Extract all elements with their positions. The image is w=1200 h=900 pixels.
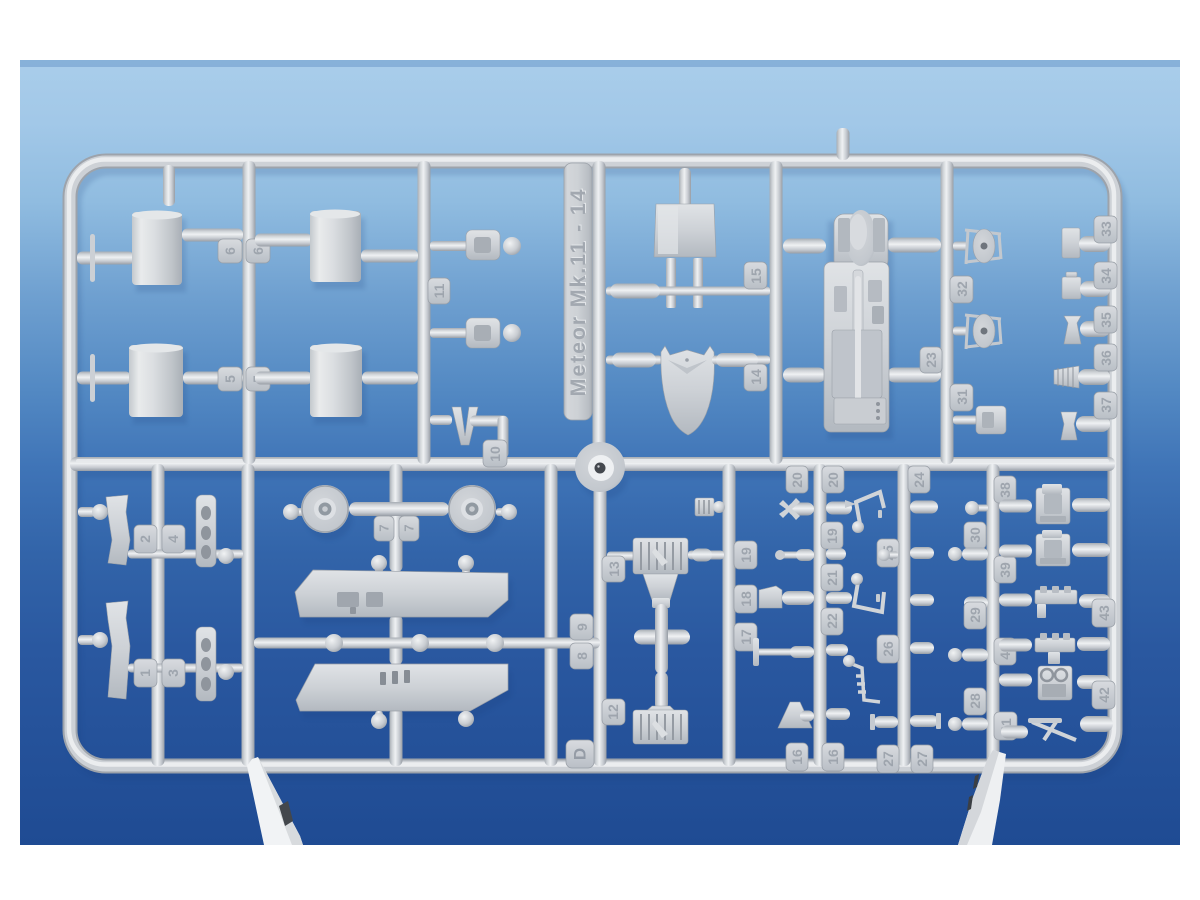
svg-text:6: 6 [250,247,266,255]
svg-text:23: 23 [923,352,939,368]
svg-text:28: 28 [967,693,983,709]
svg-text:12: 12 [605,704,621,720]
svg-text:34: 34 [1098,268,1114,284]
svg-text:33: 33 [1098,221,1114,237]
svg-text:7: 7 [377,524,392,531]
svg-text:14: 14 [748,369,764,385]
svg-text:21: 21 [824,570,840,586]
svg-text:32: 32 [954,281,970,297]
svg-text:31: 31 [954,389,970,405]
svg-text:27: 27 [880,751,896,767]
svg-text:29: 29 [967,607,983,623]
svg-text:19: 19 [738,547,754,563]
svg-text:20: 20 [789,472,805,488]
svg-text:16: 16 [825,749,841,765]
svg-text:Meteor Mk.11 - 14: Meteor Mk.11 - 14 [566,188,590,397]
svg-text:10: 10 [487,446,503,462]
svg-text:D: D [571,748,590,760]
svg-text:1: 1 [137,669,153,677]
svg-text:3: 3 [165,669,181,677]
svg-text:9: 9 [574,623,590,631]
svg-text:11: 11 [431,283,447,298]
svg-text:15: 15 [748,268,764,284]
svg-text:5: 5 [222,375,238,383]
svg-text:26: 26 [880,641,896,657]
svg-text:13: 13 [606,561,622,577]
svg-text:35: 35 [1098,312,1114,328]
svg-text:4: 4 [165,535,181,543]
svg-text:2: 2 [137,535,153,543]
svg-text:24: 24 [911,472,927,488]
svg-text:20: 20 [825,472,841,488]
svg-text:6: 6 [222,247,238,255]
svg-text:39: 39 [997,562,1013,578]
svg-text:17: 17 [738,629,754,645]
svg-text:37: 37 [1098,397,1114,413]
svg-text:38: 38 [997,482,1013,498]
svg-text:36: 36 [1098,350,1114,366]
svg-text:16: 16 [789,749,805,765]
svg-text:43: 43 [1096,605,1112,621]
svg-text:42: 42 [1096,687,1112,703]
svg-text:8: 8 [574,652,590,660]
svg-text:22: 22 [824,613,840,629]
svg-text:30: 30 [967,527,983,543]
svg-text:27: 27 [914,751,930,767]
svg-text:7: 7 [402,524,417,531]
svg-text:18: 18 [738,591,754,607]
svg-text:19: 19 [824,528,840,544]
